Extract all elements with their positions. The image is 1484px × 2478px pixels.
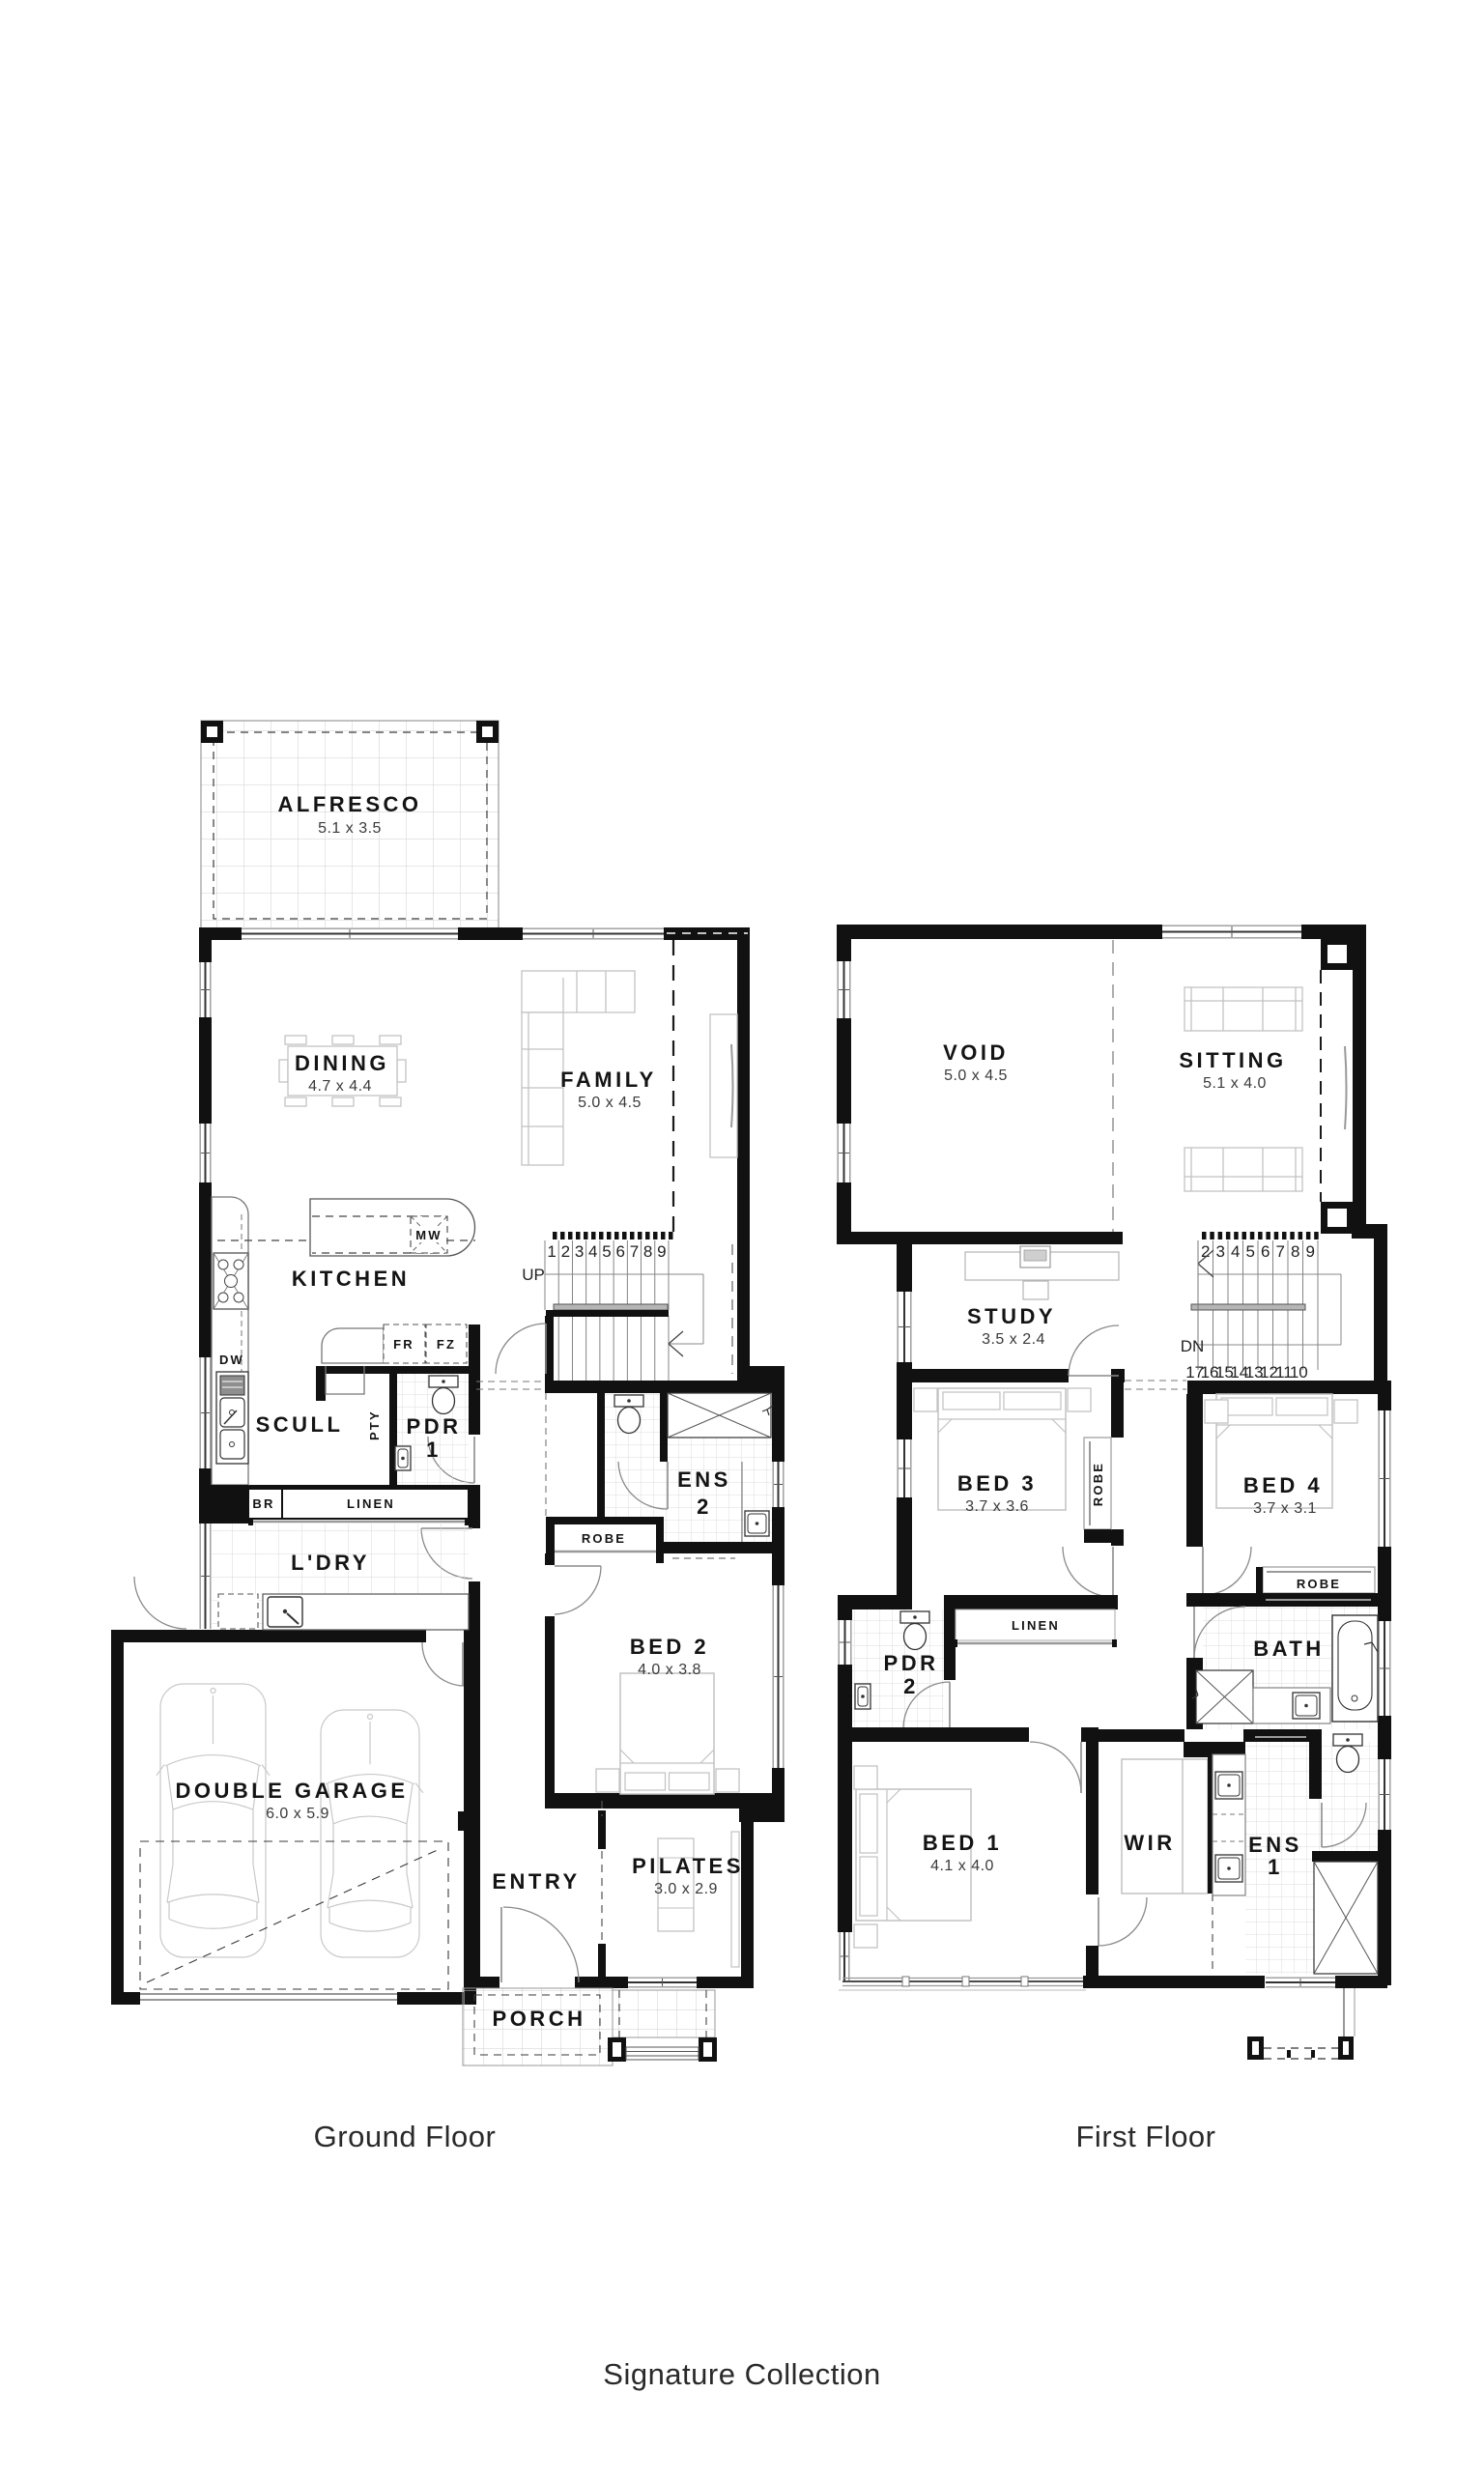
svg-text:BED 3: BED 3: [957, 1471, 1037, 1495]
svg-text:2: 2: [697, 1495, 712, 1519]
svg-text:ROBE: ROBE: [582, 1531, 626, 1546]
svg-text:LINEN: LINEN: [1012, 1618, 1060, 1633]
svg-text:4: 4: [588, 1242, 597, 1261]
svg-text:MW: MW: [415, 1228, 442, 1242]
svg-text:2: 2: [1201, 1242, 1210, 1261]
svg-text:5.1 x 4.0: 5.1 x 4.0: [1203, 1075, 1267, 1092]
svg-text:BR: BR: [252, 1496, 274, 1511]
svg-text:4.1 x 4.0: 4.1 x 4.0: [930, 1858, 994, 1874]
svg-text:9: 9: [657, 1242, 666, 1261]
svg-text:KITCHEN: KITCHEN: [292, 1267, 410, 1291]
svg-text:ENS: ENS: [1248, 1833, 1302, 1857]
svg-text:PORCH: PORCH: [493, 2007, 586, 2031]
svg-text:7: 7: [1276, 1242, 1285, 1261]
svg-text:Signature Collection: Signature Collection: [603, 2357, 880, 2391]
svg-text:3.0 x 2.9: 3.0 x 2.9: [654, 1881, 718, 1897]
svg-text:10: 10: [1290, 1363, 1308, 1381]
svg-text:3.7 x 3.6: 3.7 x 3.6: [965, 1498, 1029, 1515]
svg-text:7: 7: [630, 1242, 639, 1261]
svg-text:4.7 x 4.4: 4.7 x 4.4: [308, 1078, 372, 1095]
svg-text:SITTING: SITTING: [1179, 1048, 1286, 1072]
svg-text:1: 1: [426, 1438, 442, 1462]
svg-text:5.0 x 4.5: 5.0 x 4.5: [578, 1095, 642, 1111]
svg-text:6: 6: [615, 1242, 624, 1261]
svg-text:FR: FR: [393, 1337, 414, 1352]
svg-text:3: 3: [575, 1242, 584, 1261]
svg-text:ENTRY: ENTRY: [492, 1869, 580, 1894]
svg-text:6: 6: [1261, 1242, 1270, 1261]
svg-text:BED 4: BED 4: [1243, 1473, 1323, 1497]
svg-text:FAMILY: FAMILY: [560, 1068, 657, 1092]
svg-text:PTY: PTY: [367, 1410, 382, 1440]
svg-text:BED 2: BED 2: [630, 1635, 709, 1659]
svg-text:DOUBLE GARAGE: DOUBLE GARAGE: [175, 1779, 408, 1803]
svg-text:5: 5: [602, 1242, 611, 1261]
svg-text:2: 2: [561, 1242, 570, 1261]
svg-text:BED 1: BED 1: [923, 1831, 1002, 1855]
svg-text:BATH: BATH: [1253, 1637, 1324, 1661]
svg-text:9: 9: [1306, 1242, 1315, 1261]
svg-text:1: 1: [547, 1242, 556, 1261]
svg-text:5: 5: [1246, 1242, 1255, 1261]
svg-text:5.1 x 3.5: 5.1 x 3.5: [318, 820, 382, 837]
svg-text:4.0 x 3.8: 4.0 x 3.8: [638, 1662, 701, 1678]
svg-text:3.5 x 2.4: 3.5 x 2.4: [982, 1331, 1045, 1348]
svg-text:2: 2: [903, 1674, 919, 1698]
svg-text:PILATES: PILATES: [632, 1854, 744, 1878]
svg-text:8: 8: [1291, 1242, 1299, 1261]
svg-text:ALFRESCO: ALFRESCO: [278, 792, 422, 816]
svg-text:DINING: DINING: [295, 1051, 389, 1075]
svg-text:STUDY: STUDY: [967, 1304, 1056, 1328]
svg-text:L'DRY: L'DRY: [291, 1551, 370, 1575]
svg-text:FZ: FZ: [437, 1337, 456, 1352]
svg-text:PDR: PDR: [884, 1651, 939, 1675]
svg-text:LINEN: LINEN: [347, 1496, 395, 1511]
svg-text:ROBE: ROBE: [1091, 1462, 1105, 1506]
svg-text:ROBE: ROBE: [1297, 1577, 1341, 1591]
svg-text:3: 3: [1216, 1242, 1225, 1261]
svg-text:PDR: PDR: [407, 1414, 462, 1438]
svg-text:VOID: VOID: [943, 1040, 1009, 1065]
svg-text:ENS: ENS: [677, 1467, 731, 1492]
svg-text:First Floor: First Floor: [1076, 2120, 1216, 2153]
svg-text:UP: UP: [522, 1266, 545, 1284]
svg-text:DN: DN: [1181, 1337, 1205, 1355]
svg-text:Ground Floor: Ground Floor: [314, 2120, 497, 2153]
svg-text:8: 8: [643, 1242, 652, 1261]
svg-text:SCULL: SCULL: [256, 1412, 344, 1437]
svg-text:6.0 x 5.9: 6.0 x 5.9: [266, 1806, 329, 1822]
svg-text:WIR: WIR: [1124, 1831, 1175, 1855]
svg-text:5.0 x 4.5: 5.0 x 4.5: [944, 1068, 1008, 1084]
svg-text:DW: DW: [219, 1353, 244, 1367]
svg-text:4: 4: [1231, 1242, 1240, 1261]
svg-text:1: 1: [1268, 1855, 1283, 1879]
svg-text:3.7 x 3.1: 3.7 x 3.1: [1253, 1500, 1317, 1517]
